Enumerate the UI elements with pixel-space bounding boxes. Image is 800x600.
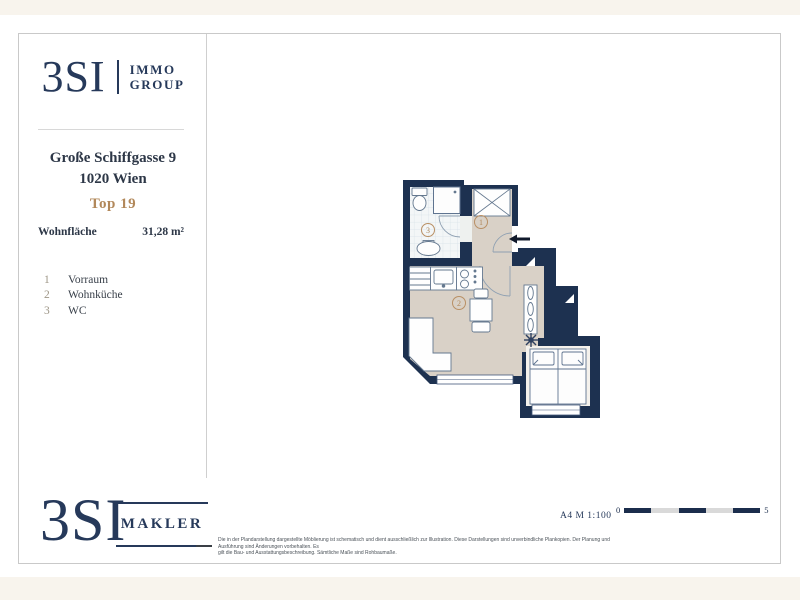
legend-row: 1 Vorraum <box>44 272 123 288</box>
scale-bar-segments <box>624 508 760 513</box>
legend-name: Wohnküche <box>68 289 123 301</box>
floor-plan: 1 2 3 <box>400 172 600 422</box>
scale-segment <box>733 508 760 513</box>
disclaimer-text: Die in der Plandarstellung dargestellte … <box>218 537 632 557</box>
footer-brand-division: MAKLER <box>116 502 208 547</box>
svg-text:1: 1 <box>479 218 483 227</box>
format-scale-text: A4 M 1:100 <box>560 511 611 521</box>
brand-name: 3SI <box>41 55 105 99</box>
bed <box>530 349 586 404</box>
scale-segment <box>706 508 733 513</box>
bottom-margin-band <box>0 577 800 600</box>
property-city: 1020 Wien <box>19 171 207 188</box>
disclaimer-line1: Die in der Plandarstellung dargestellte … <box>218 537 632 550</box>
disclaimer-dash <box>196 545 212 547</box>
svg-text:3: 3 <box>426 226 430 235</box>
living-area-label: Wohnfläche <box>38 226 97 238</box>
header-divider <box>38 129 184 130</box>
living-area-value: 31,28 m² <box>142 226 184 238</box>
scale-segment <box>624 508 651 513</box>
toilet-icon <box>412 188 427 211</box>
legend-name: WC <box>68 305 87 317</box>
brand-division-line2: GROUP <box>130 77 185 92</box>
vertical-divider <box>206 34 207 478</box>
svg-text:2: 2 <box>457 299 461 308</box>
brand-division: IMMO GROUP <box>130 62 185 92</box>
shower-icon <box>434 187 461 214</box>
footer-brand-name: 3SI <box>40 490 126 550</box>
kitchen-counter <box>410 267 483 290</box>
window-main <box>437 375 513 384</box>
scale-segment <box>679 508 706 513</box>
legend-row: 3 WC <box>44 303 123 319</box>
wall-wc-kitchen <box>403 258 460 266</box>
plant-icon <box>524 333 538 347</box>
scale-bar: 0 5 <box>616 505 768 515</box>
radiator <box>524 285 537 334</box>
legend-row: 2 Wohnküche <box>44 288 123 304</box>
top-margin-band <box>0 0 800 15</box>
window-niche <box>532 405 580 415</box>
wardrobe-icon <box>474 189 510 216</box>
scale-zero-label: 0 <box>616 505 620 515</box>
disclaimer-line2: gilt die Bau- und Ausstattungsbeschreibu… <box>218 550 632 557</box>
living-area-row: Wohnfläche 31,28 m² <box>38 226 184 238</box>
scale-segment <box>651 508 678 513</box>
floor-plan-page: 3SI IMMO GROUP Große Schiffgasse 9 1020 … <box>0 0 800 600</box>
room-legend: 1 Vorraum 2 Wohnküche 3 WC <box>44 272 123 319</box>
legend-number: 1 <box>44 274 68 286</box>
property-street: Große Schiffgasse 9 <box>19 150 207 167</box>
legend-name: Vorraum <box>68 274 108 286</box>
scale-five-label: 5 <box>764 505 768 515</box>
legend-number: 3 <box>44 305 68 317</box>
brand-logo: 3SI IMMO GROUP <box>19 55 207 99</box>
brand-division-line1: IMMO <box>130 62 185 77</box>
wc-door-opening <box>460 216 472 242</box>
legend-number: 2 <box>44 289 68 301</box>
logo-separator <box>117 60 119 94</box>
property-unit: Top 19 <box>19 196 207 213</box>
